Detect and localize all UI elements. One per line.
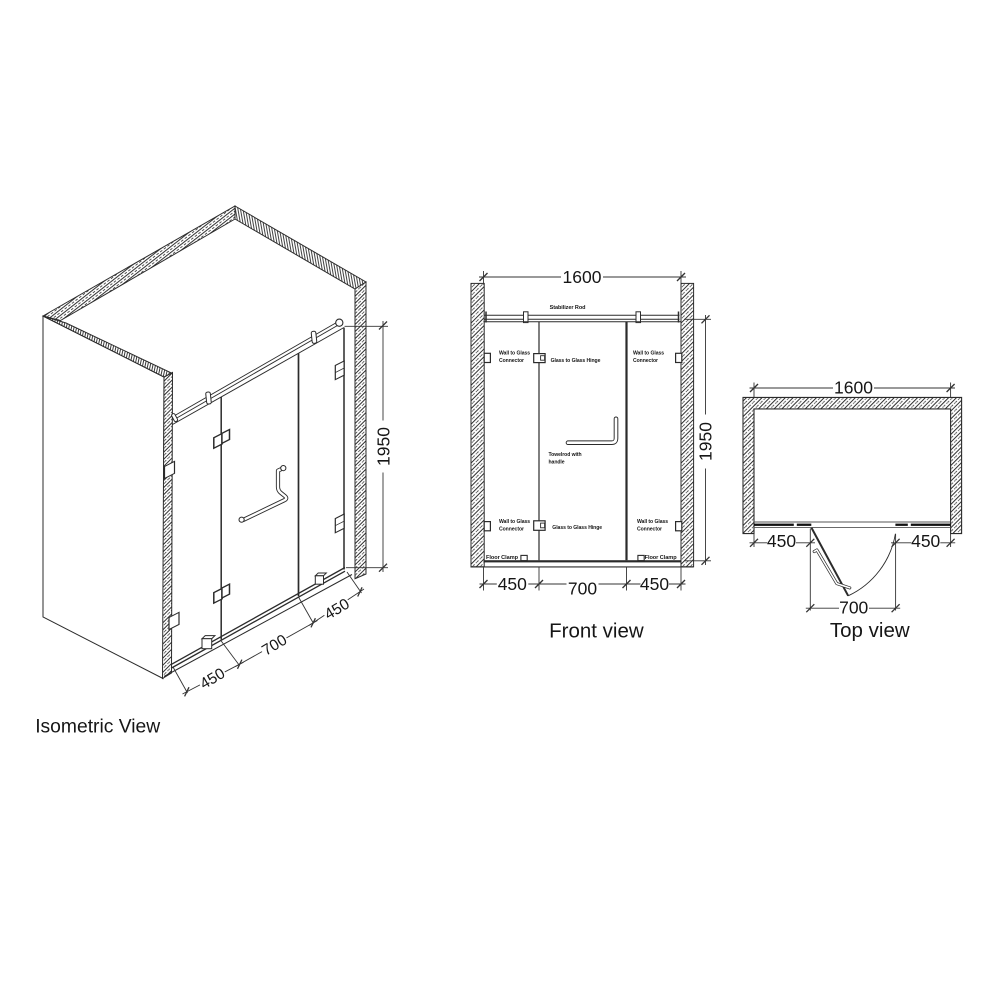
- svg-text:Floor Clamp: Floor Clamp: [645, 555, 678, 561]
- svg-text:1600: 1600: [563, 267, 602, 287]
- svg-text:450: 450: [640, 574, 669, 594]
- svg-text:Isometric View: Isometric View: [35, 716, 160, 737]
- svg-text:Connector: Connector: [499, 358, 524, 364]
- svg-text:Wall to Glass: Wall to Glass: [499, 519, 530, 525]
- svg-text:1950: 1950: [696, 422, 716, 461]
- svg-text:Connector: Connector: [499, 527, 524, 533]
- svg-text:Wall to Glass: Wall to Glass: [633, 350, 664, 356]
- svg-text:Glass to Glass Hinge: Glass to Glass Hinge: [552, 525, 602, 531]
- svg-text:Floor Clamp: Floor Clamp: [486, 555, 519, 561]
- svg-text:700: 700: [568, 579, 597, 599]
- svg-text:Glass to Glass Hinge: Glass to Glass Hinge: [551, 358, 601, 364]
- svg-text:450: 450: [767, 531, 796, 551]
- svg-text:Stabilizer Rod: Stabilizer Rod: [550, 305, 586, 311]
- svg-text:Connector: Connector: [633, 358, 658, 364]
- svg-text:handle: handle: [549, 459, 565, 465]
- svg-text:Top view: Top view: [830, 619, 910, 642]
- svg-text:450: 450: [911, 531, 940, 551]
- svg-text:Wall to Glass: Wall to Glass: [637, 519, 668, 525]
- svg-text:Wall to Glass: Wall to Glass: [499, 350, 530, 356]
- svg-text:1600: 1600: [834, 377, 873, 397]
- svg-text:Front view: Front view: [549, 620, 644, 643]
- svg-text:Towelrod with: Towelrod with: [549, 452, 582, 458]
- svg-text:1950: 1950: [374, 427, 394, 466]
- svg-text:450: 450: [498, 574, 527, 594]
- svg-text:700: 700: [839, 598, 868, 618]
- svg-text:Connector: Connector: [637, 527, 662, 533]
